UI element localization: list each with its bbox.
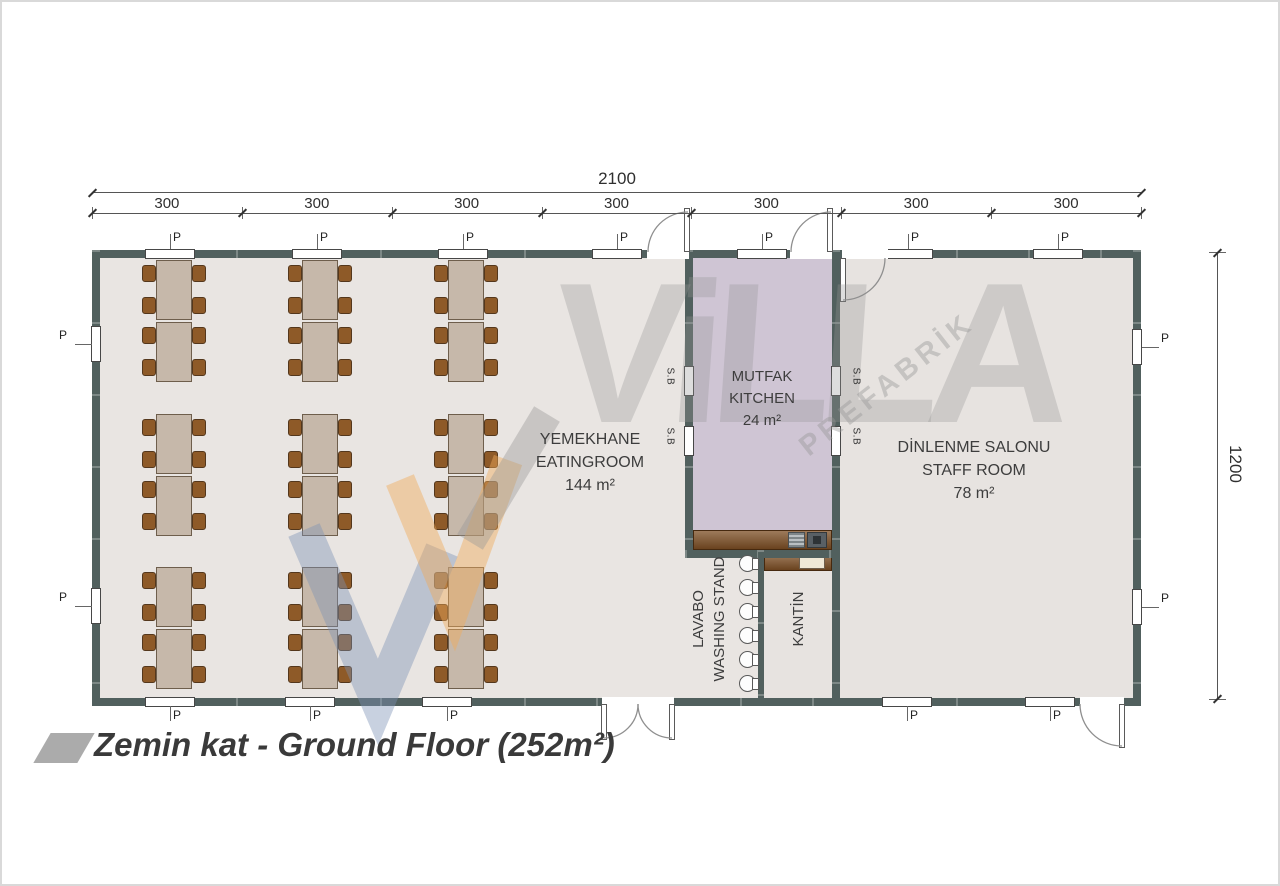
chair	[288, 265, 302, 282]
washbasin-tank	[752, 606, 759, 618]
washstand-line2: WASHING STAND	[709, 539, 730, 699]
chair	[338, 359, 352, 376]
dim-slash	[88, 188, 97, 197]
chair	[142, 359, 156, 376]
dim-height: 1200	[1225, 437, 1245, 491]
dining-table	[302, 629, 338, 689]
chair	[192, 604, 206, 621]
door-arc-staffroom-bottom	[1080, 704, 1122, 746]
kitchen-name-tr: MUTFAK	[692, 366, 832, 388]
chair	[338, 419, 352, 436]
chair	[288, 451, 302, 468]
dining-table	[302, 414, 338, 474]
p-tick	[1142, 347, 1159, 348]
chair	[192, 513, 206, 530]
window-p	[292, 249, 342, 259]
floorplan-canvas: ViLLA PREFABRİK YEMEKHANE EATINGROOM 144…	[0, 0, 1280, 886]
chair	[142, 297, 156, 314]
chair	[288, 359, 302, 376]
chair	[142, 634, 156, 651]
dish-drainer	[788, 532, 805, 548]
p-label: P	[450, 709, 458, 722]
washbasin-tank	[752, 630, 759, 642]
chair	[142, 327, 156, 344]
dim-line-total	[92, 192, 1141, 193]
chair	[192, 265, 206, 282]
chair	[288, 327, 302, 344]
chair	[434, 572, 448, 589]
chair	[484, 297, 498, 314]
p-label: P	[59, 329, 67, 342]
chair	[338, 604, 352, 621]
chair	[288, 604, 302, 621]
dim-segment-label: 300	[891, 195, 941, 212]
p-label: P	[1161, 332, 1169, 345]
p-label: P	[620, 231, 628, 244]
dining-table	[448, 260, 484, 320]
chair	[192, 481, 206, 498]
washstand-canteen-wall	[758, 550, 764, 698]
chair	[192, 297, 206, 314]
door-arc-double-right	[638, 704, 672, 738]
chair	[338, 513, 352, 530]
dim-segment-label: 300	[442, 195, 492, 212]
p-label: P	[910, 709, 918, 722]
chair	[484, 572, 498, 589]
dining-table	[448, 629, 484, 689]
chair	[484, 666, 498, 683]
chair	[434, 359, 448, 376]
chair	[434, 666, 448, 683]
outer-wall-left	[92, 250, 100, 706]
p-tick	[463, 234, 464, 249]
p-tick	[170, 706, 171, 721]
p-label: P	[59, 591, 67, 604]
door-gap-bottom-double	[602, 697, 674, 707]
washbasin-tank	[752, 654, 759, 666]
staffroom-name-tr: DİNLENME SALONU	[854, 436, 1094, 459]
p-tick	[907, 706, 908, 721]
chair	[434, 327, 448, 344]
dim-segment-label: 300	[142, 195, 192, 212]
chair	[434, 634, 448, 651]
chair	[338, 327, 352, 344]
p-tick	[75, 606, 92, 607]
dining-table	[156, 322, 192, 382]
title-swatch-icon	[33, 733, 94, 763]
dim-slash	[1137, 188, 1146, 197]
dining-table	[156, 629, 192, 689]
chair	[338, 572, 352, 589]
p-tick	[75, 344, 92, 345]
chair	[142, 481, 156, 498]
eatingroom-area: 144 m²	[490, 474, 690, 497]
staffroom-label: DİNLENME SALONU STAFF ROOM 78 m²	[854, 436, 1094, 505]
chair	[338, 297, 352, 314]
kitchen-name-en: KITCHEN	[692, 388, 832, 410]
washstand-line1: LAVABO	[688, 539, 709, 699]
chair	[192, 327, 206, 344]
chair	[434, 297, 448, 314]
page-title: Zemin kat - Ground Floor (252m²)	[94, 726, 615, 764]
chair	[192, 666, 206, 683]
window-p	[438, 249, 488, 259]
chair	[484, 634, 498, 651]
dim-line-segments	[92, 213, 1141, 214]
p-label: P	[1053, 709, 1061, 722]
chair	[288, 666, 302, 683]
p-tick	[1050, 706, 1051, 721]
dining-table	[156, 260, 192, 320]
chair	[142, 451, 156, 468]
chair	[338, 265, 352, 282]
staffroom-name-en: STAFF ROOM	[854, 459, 1094, 482]
p-tick	[1058, 234, 1059, 249]
dining-table	[302, 567, 338, 627]
chair	[142, 604, 156, 621]
p-tick	[317, 234, 318, 249]
chair	[192, 359, 206, 376]
kitchen-label: MUTFAK KITCHEN 24 m²	[692, 366, 832, 432]
chair	[484, 265, 498, 282]
dining-table	[302, 322, 338, 382]
dining-table	[448, 322, 484, 382]
dim-total-width: 2100	[577, 169, 657, 189]
dim-segment-label: 300	[592, 195, 642, 212]
chair	[484, 604, 498, 621]
dining-table	[156, 476, 192, 536]
dining-table	[156, 414, 192, 474]
chair	[192, 451, 206, 468]
chair	[338, 481, 352, 498]
chair	[192, 419, 206, 436]
window-p	[91, 326, 101, 362]
chair	[484, 359, 498, 376]
chair	[288, 513, 302, 530]
kitchen-area: 24 m²	[692, 410, 832, 432]
chair	[288, 572, 302, 589]
washstand-label: LAVABO WASHING STAND	[688, 539, 732, 699]
dim-segment-label: 300	[741, 195, 791, 212]
outer-wall-right	[1133, 250, 1141, 706]
dim-line-height	[1217, 252, 1218, 699]
eatingroom-name-en: EATINGROOM	[490, 451, 690, 474]
staffroom-area: 78 m²	[854, 482, 1094, 505]
sb-label: S.B	[851, 368, 862, 394]
p-label: P	[1161, 592, 1169, 605]
washbasin-tank	[752, 582, 759, 594]
dining-table	[448, 414, 484, 474]
chair	[142, 572, 156, 589]
window-p	[145, 249, 195, 259]
chair	[288, 297, 302, 314]
chair	[142, 265, 156, 282]
eatingroom-label: YEMEKHANE EATINGROOM 144 m²	[490, 428, 690, 497]
washbasin-tank	[752, 678, 759, 690]
dining-table	[448, 476, 484, 536]
chair	[142, 666, 156, 683]
window-p	[91, 588, 101, 624]
sb-label: S.B	[665, 368, 676, 394]
chair	[434, 419, 448, 436]
chair	[484, 513, 498, 530]
chair	[192, 634, 206, 651]
chair	[288, 634, 302, 651]
chair	[434, 451, 448, 468]
window-p	[1132, 329, 1142, 365]
p-label: P	[911, 231, 919, 244]
chair	[434, 604, 448, 621]
sb-label: S.B	[665, 428, 676, 454]
chair	[142, 513, 156, 530]
p-tick	[447, 706, 448, 721]
door-leaf-staffroom-bottom	[1119, 704, 1125, 748]
p-tick	[617, 234, 618, 249]
sb-label: S.B	[851, 428, 862, 454]
chair	[434, 513, 448, 530]
chair	[288, 419, 302, 436]
p-label: P	[1061, 231, 1069, 244]
dining-table	[156, 567, 192, 627]
p-tick	[1142, 607, 1159, 608]
chair	[288, 481, 302, 498]
p-tick	[310, 706, 311, 721]
dining-table	[448, 567, 484, 627]
chair	[338, 451, 352, 468]
p-label: P	[313, 709, 321, 722]
p-label: P	[173, 231, 181, 244]
dim-segment-label: 300	[292, 195, 342, 212]
p-tick	[170, 234, 171, 249]
p-tick	[762, 234, 763, 249]
chair	[142, 419, 156, 436]
canteen-label: KANTİN	[788, 574, 806, 664]
chair	[434, 481, 448, 498]
p-tick	[908, 234, 909, 249]
door-gap-staffroom-bottom	[1080, 697, 1124, 707]
dining-table	[302, 260, 338, 320]
p-label: P	[320, 231, 328, 244]
dining-table	[302, 476, 338, 536]
chair	[192, 572, 206, 589]
window-p	[1132, 589, 1142, 625]
p-label: P	[466, 231, 474, 244]
p-label: P	[173, 709, 181, 722]
eatingroom-name-tr: YEMEKHANE	[490, 428, 690, 451]
washbasin-tank	[752, 558, 759, 570]
chair	[434, 265, 448, 282]
dim-segment-label: 300	[1041, 195, 1091, 212]
chair	[484, 327, 498, 344]
chair	[338, 634, 352, 651]
door-leaf-double-right	[669, 704, 675, 740]
kitchen-sink-basin	[813, 536, 821, 544]
chair	[338, 666, 352, 683]
p-label: P	[765, 231, 773, 244]
